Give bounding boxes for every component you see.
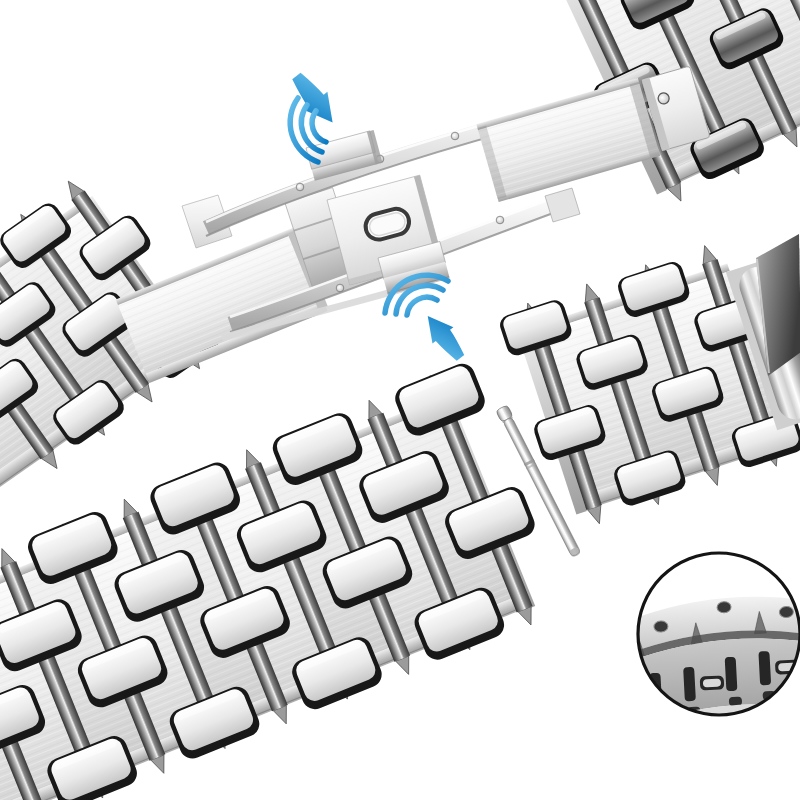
mag-screw-hole	[779, 606, 794, 618]
screw-icon	[336, 284, 344, 292]
product-image	[0, 0, 800, 800]
screw-icon	[451, 132, 459, 140]
screw-icon	[296, 183, 304, 191]
watch-band-product-photo	[0, 0, 800, 800]
mag-screw-hole	[654, 621, 669, 633]
mag-screw-hole	[717, 601, 732, 613]
screw-icon	[496, 216, 504, 224]
